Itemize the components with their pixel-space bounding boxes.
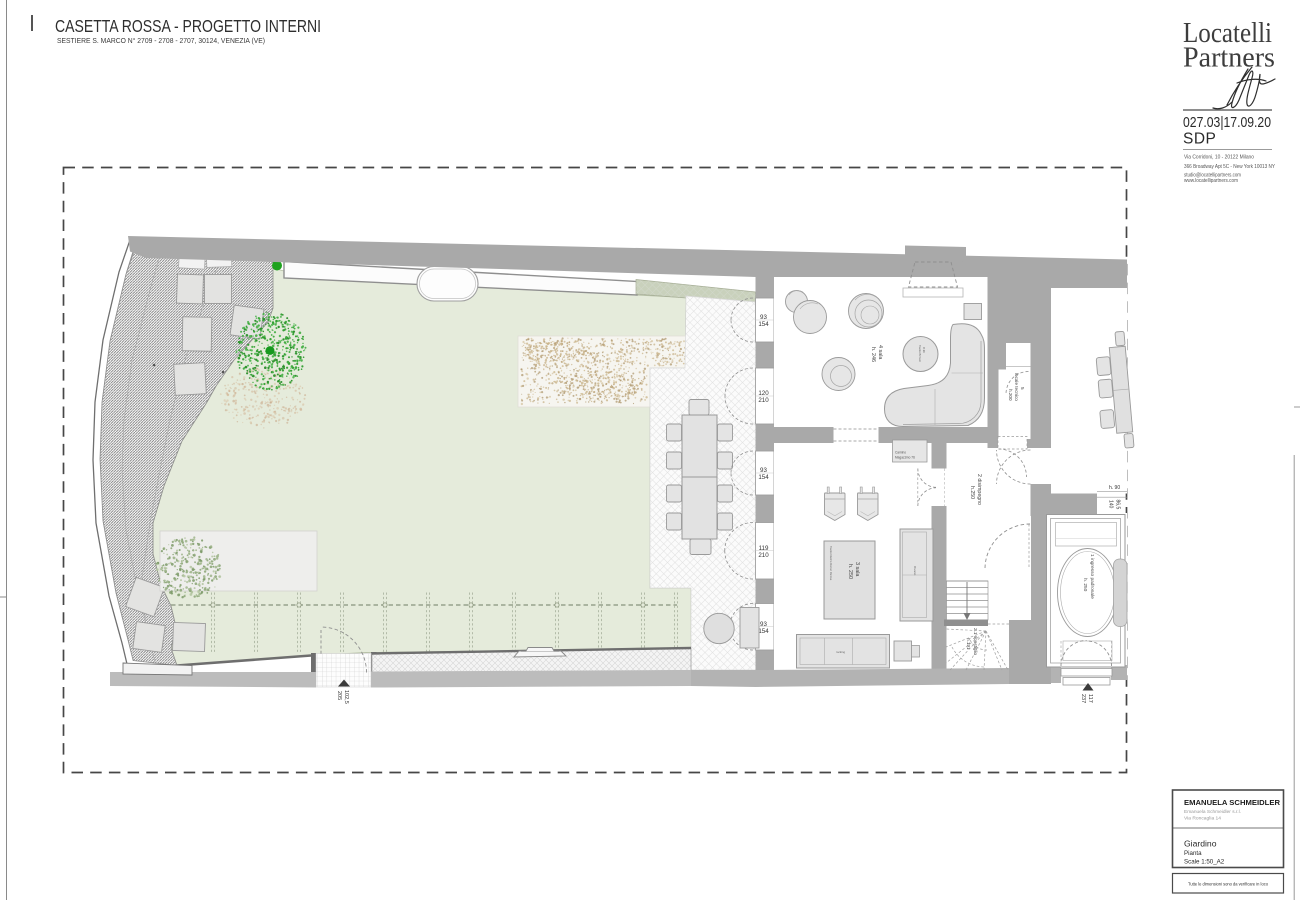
svg-text:h. 250: h. 250 <box>847 564 853 579</box>
svg-text:117: 117 <box>1087 694 1093 703</box>
svg-text:www.locatellipartners.com: www.locatellipartners.com <box>1183 178 1238 184</box>
svg-text:140: 140 <box>1108 500 1114 509</box>
svg-text:154: 154 <box>758 628 769 635</box>
svg-text:Giardino: Giardino <box>1184 839 1217 849</box>
svg-text:Pianta: Pianta <box>1184 850 1202 857</box>
svg-text:Camino: Camino <box>895 451 906 455</box>
svg-text:93: 93 <box>760 467 767 474</box>
svg-text:1 ingresso padronale: 1 ingresso padronale <box>1089 554 1095 599</box>
svg-text:Via Corridoni, 10 - 20122 Mila: Via Corridoni, 10 - 20122 Milano <box>1184 155 1254 161</box>
svg-text:SDP: SDP <box>1183 131 1216 148</box>
svg-text:2 disimpegno: 2 disimpegno <box>976 474 982 505</box>
svg-text:h. 246: h. 246 <box>870 347 876 362</box>
svg-text:154: 154 <box>758 321 769 328</box>
svg-text:205: 205 <box>336 691 342 700</box>
svg-text:3 sala: 3 sala <box>854 562 860 576</box>
svg-text:2.1 ripostiglio: 2.1 ripostiglio <box>973 628 978 656</box>
svg-text:Tavolo Nastro Ronan Denise: Tavolo Nastro Ronan Denise <box>829 546 833 581</box>
svg-text:154: 154 <box>758 474 769 481</box>
svg-text:4 sala: 4 sala <box>877 345 883 359</box>
svg-text:EMANUELA SCHMEIDLER: EMANUELA SCHMEIDLER <box>1184 798 1281 807</box>
svg-text:86,5: 86,5 <box>1115 500 1121 510</box>
svg-text:D.90: D.90 <box>922 347 926 353</box>
svg-text:210: 210 <box>758 552 769 559</box>
svg-text:102,5: 102,5 <box>343 690 349 704</box>
svg-text:Partners: Partners <box>1183 43 1275 74</box>
svg-text:h.200: h.200 <box>1008 389 1013 401</box>
svg-text:120: 120 <box>758 390 769 397</box>
svg-text:Emanuela Schmeidler s.r.l.: Emanuela Schmeidler s.r.l. <box>1184 809 1241 815</box>
svg-text:locale tecnico: locale tecnico <box>1014 373 1019 401</box>
svg-text:119: 119 <box>759 545 769 552</box>
svg-text:210: 210 <box>758 397 769 404</box>
svg-text:CASETTA ROSSA - PROGETTO INTER: CASETTA ROSSA - PROGETTO INTERNI <box>55 16 321 36</box>
svg-text:Via Roncaglia 14: Via Roncaglia 14 <box>1184 816 1221 822</box>
svg-text:Magazzino 76: Magazzino 76 <box>895 456 915 460</box>
svg-text:rocking: rocking <box>836 650 845 654</box>
svg-text:Divano: Divano <box>913 566 917 576</box>
svg-text:SESTIERE S. MARCO N° 2709 - 27: SESTIERE S. MARCO N° 2709 - 2708 - 2707,… <box>57 36 265 45</box>
svg-text:027.03|17.09.20: 027.03|17.09.20 <box>1183 114 1271 131</box>
svg-text:93: 93 <box>760 314 767 321</box>
svg-text:Tutte le dimensioni sono da ve: Tutte le dimensioni sono da verificare i… <box>1188 882 1269 887</box>
svg-text:5: 5 <box>1020 387 1025 390</box>
svg-text:237: 237 <box>1080 694 1086 703</box>
svg-text:366 Broadway Apt 5C - New York: 366 Broadway Apt 5C - New York 10013 NY <box>1184 164 1275 170</box>
svg-text:Tavolo Birnam: Tavolo Birnam <box>918 345 922 363</box>
svg-text:Scale 1:50_A2: Scale 1:50_A2 <box>1184 859 1225 866</box>
svg-text:h.250: h.250 <box>969 486 975 499</box>
svg-text:h. 90: h. 90 <box>1109 485 1120 491</box>
svg-text:93: 93 <box>760 621 767 628</box>
svg-text:h. 250: h. 250 <box>1082 578 1088 592</box>
